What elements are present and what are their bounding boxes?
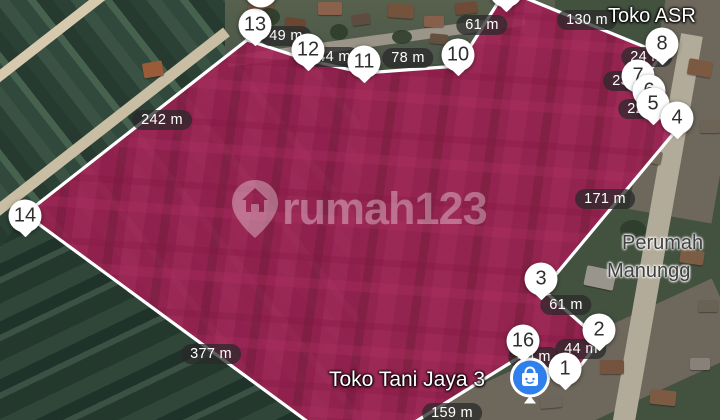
vertex-marker-10[interactable]: 10 xyxy=(442,39,475,72)
map-canvas[interactable]: rumah123 49 m44 m78 m61 m130 m24 m23 m22… xyxy=(0,0,720,420)
place-label-toko-tani-jaya-3[interactable]: Toko Tani Jaya 3 xyxy=(329,368,485,392)
vertex-marker-13[interactable]: 13 xyxy=(239,9,272,42)
distance-label: 159 m xyxy=(422,403,482,420)
place-label-perumahan-line2[interactable]: Manungg xyxy=(607,260,690,283)
vertex-marker-11[interactable]: 11 xyxy=(348,46,381,79)
distance-label: 242 m xyxy=(132,110,192,130)
vertex-marker-14[interactable]: 14 xyxy=(9,200,42,233)
distance-label: 61 m xyxy=(456,15,507,35)
vertex-marker-1[interactable]: 1 xyxy=(549,353,582,386)
place-label-perumahan-line1[interactable]: Perumah xyxy=(622,232,703,255)
shopping-bag-icon xyxy=(507,356,553,412)
vertex-marker-4[interactable]: 4 xyxy=(661,102,694,135)
distance-label: 171 m xyxy=(575,189,635,209)
vertex-marker-2[interactable]: 2 xyxy=(583,314,616,347)
vertex-marker-3[interactable]: 3 xyxy=(525,263,558,296)
vertex-marker-8[interactable]: 8 xyxy=(646,28,679,61)
distance-label: 78 m xyxy=(382,48,433,68)
place-label-toko-asr[interactable]: Toko ASR xyxy=(608,5,696,28)
distance-label: 61 m xyxy=(540,295,591,315)
distance-label: 377 m xyxy=(181,344,241,364)
vertex-marker-16[interactable]: 16 xyxy=(507,325,540,358)
vertex-marker-12[interactable]: 12 xyxy=(292,34,325,67)
store-marker[interactable] xyxy=(507,356,553,417)
